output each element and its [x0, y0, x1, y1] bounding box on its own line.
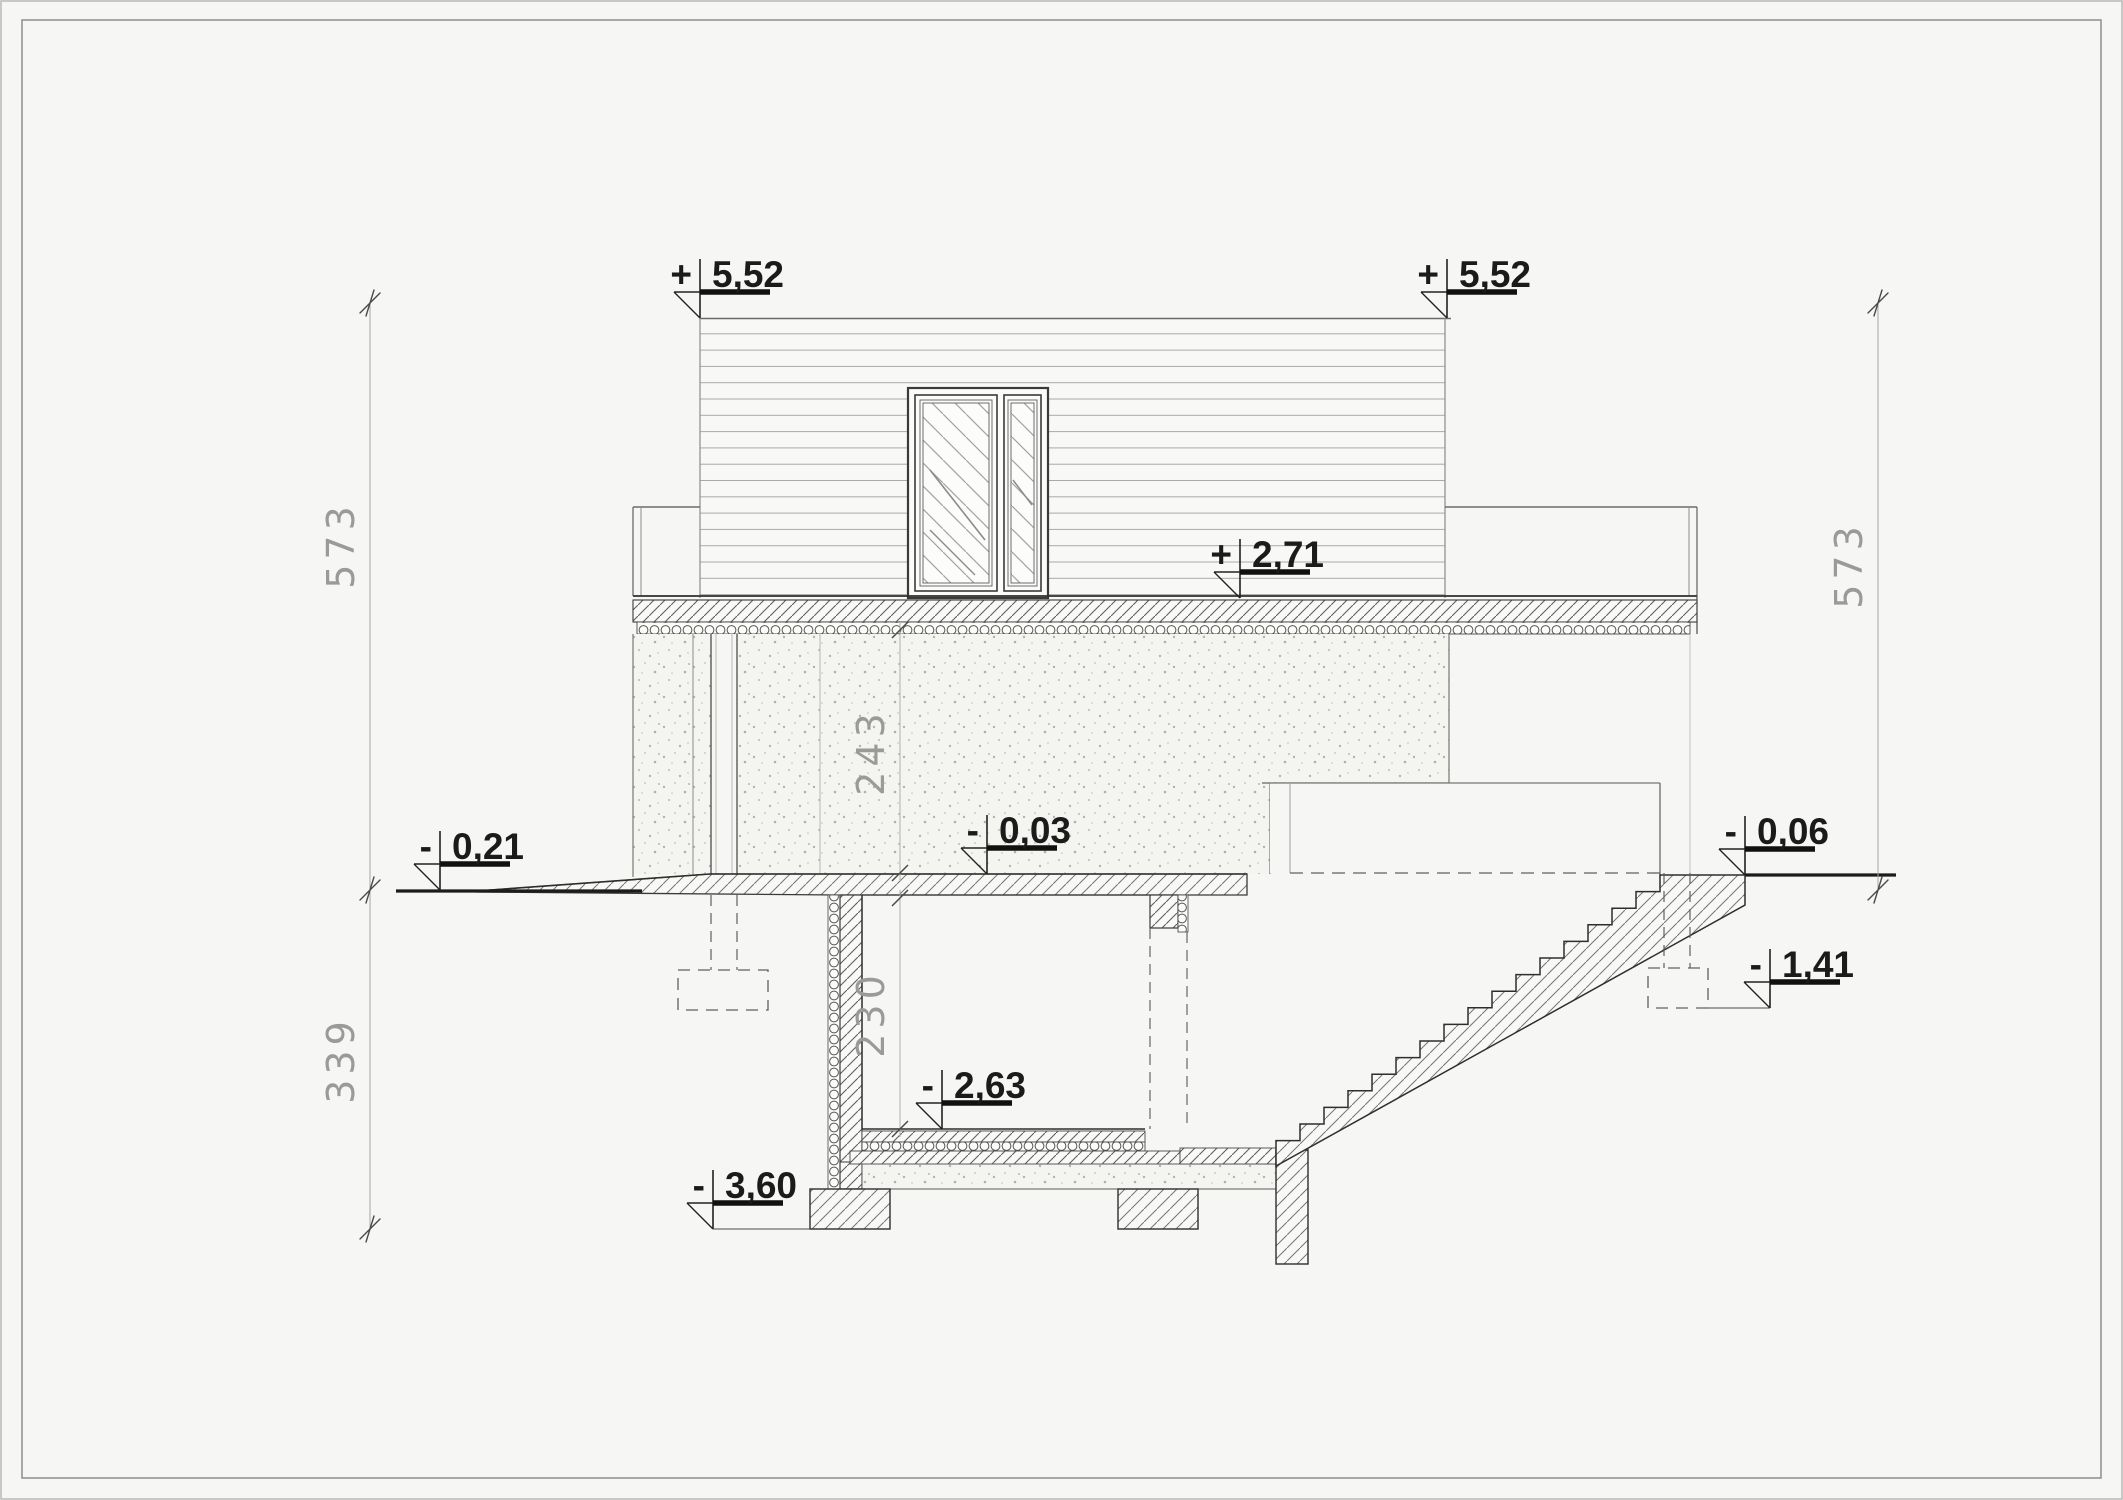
level-value: 5,52 — [712, 254, 784, 295]
drawing-sheet: + 5,52 + 5,52 + 2,71 - 0,21 - 0,03 - — [0, 0, 2123, 1500]
dimension-chain-left: 573 339 — [319, 290, 380, 1242]
slab-insulation — [637, 622, 1690, 634]
level-marker-roof-right: + 5,52 — [1417, 254, 1531, 318]
level-value: 1,41 — [1782, 944, 1854, 985]
footing-left — [810, 1189, 890, 1229]
dimension-value: 339 — [319, 1016, 363, 1104]
level-marker-terrain-right: - 0,06 — [1719, 811, 1829, 875]
level-value: 2,63 — [954, 1065, 1026, 1106]
section-drawing: + 5,52 + 5,52 + 2,71 - 0,21 - 0,03 - — [0, 0, 2123, 1500]
level-marker-foundation: - 3,60 — [687, 1165, 810, 1229]
basement-wall-right-top — [1150, 895, 1178, 928]
upper-floor-slab — [633, 596, 1697, 634]
level-sign: + — [1417, 254, 1439, 295]
level-value: 5,52 — [1459, 254, 1531, 295]
footing-right — [1118, 1189, 1198, 1229]
level-value: 2,71 — [1252, 534, 1324, 575]
level-marker-terrain-left: - 0,21 — [414, 826, 524, 890]
level-value: 0,03 — [999, 810, 1071, 851]
level-value: 0,06 — [1757, 811, 1829, 852]
level-value: 0,21 — [452, 826, 524, 867]
siding-wall — [700, 318, 1445, 598]
dimension-value: 230 — [849, 970, 893, 1058]
pad-footing-right — [1648, 968, 1708, 1008]
exterior-stair — [1276, 875, 1745, 1264]
basement — [810, 895, 1308, 1229]
level-value: 3,60 — [725, 1165, 797, 1206]
basement-floor-insulation — [862, 1142, 1145, 1151]
level-marker-basement-floor: - 2,63 — [916, 1065, 1026, 1129]
level-marker-roof-left: + 5,52 — [670, 254, 784, 318]
dimension-value: 573 — [319, 501, 363, 589]
lean-concrete — [862, 1164, 1308, 1189]
level-marker-stair-footing: - 1,41 — [1744, 944, 1854, 1008]
facade-post — [711, 634, 737, 874]
level-sign: + — [670, 254, 692, 295]
level-sign: - — [420, 826, 432, 867]
roof-terrace-railing-left — [633, 507, 700, 596]
dimension-chain-right: 573 — [1827, 290, 1888, 903]
upper-floor-elevation — [700, 318, 1451, 598]
slab-screed-hatch — [633, 600, 1697, 622]
dimension-value: 243 — [849, 708, 893, 796]
level-sign: - — [922, 1065, 934, 1106]
level-sign: - — [1725, 811, 1737, 852]
pad-footing-left — [678, 970, 768, 1010]
dimension-value: 573 — [1827, 521, 1871, 609]
level-sign: - — [693, 1165, 705, 1206]
roof-terrace-railing-right — [1445, 507, 1697, 596]
stair-flight — [1276, 875, 1745, 1166]
basement-wall-insulation-left — [828, 895, 840, 1189]
level-sign: - — [1750, 944, 1762, 985]
stair-support-wall — [1276, 1150, 1308, 1264]
level-sign: + — [1210, 534, 1232, 575]
level-sign: - — [967, 810, 979, 851]
terrace-door — [908, 388, 1048, 598]
